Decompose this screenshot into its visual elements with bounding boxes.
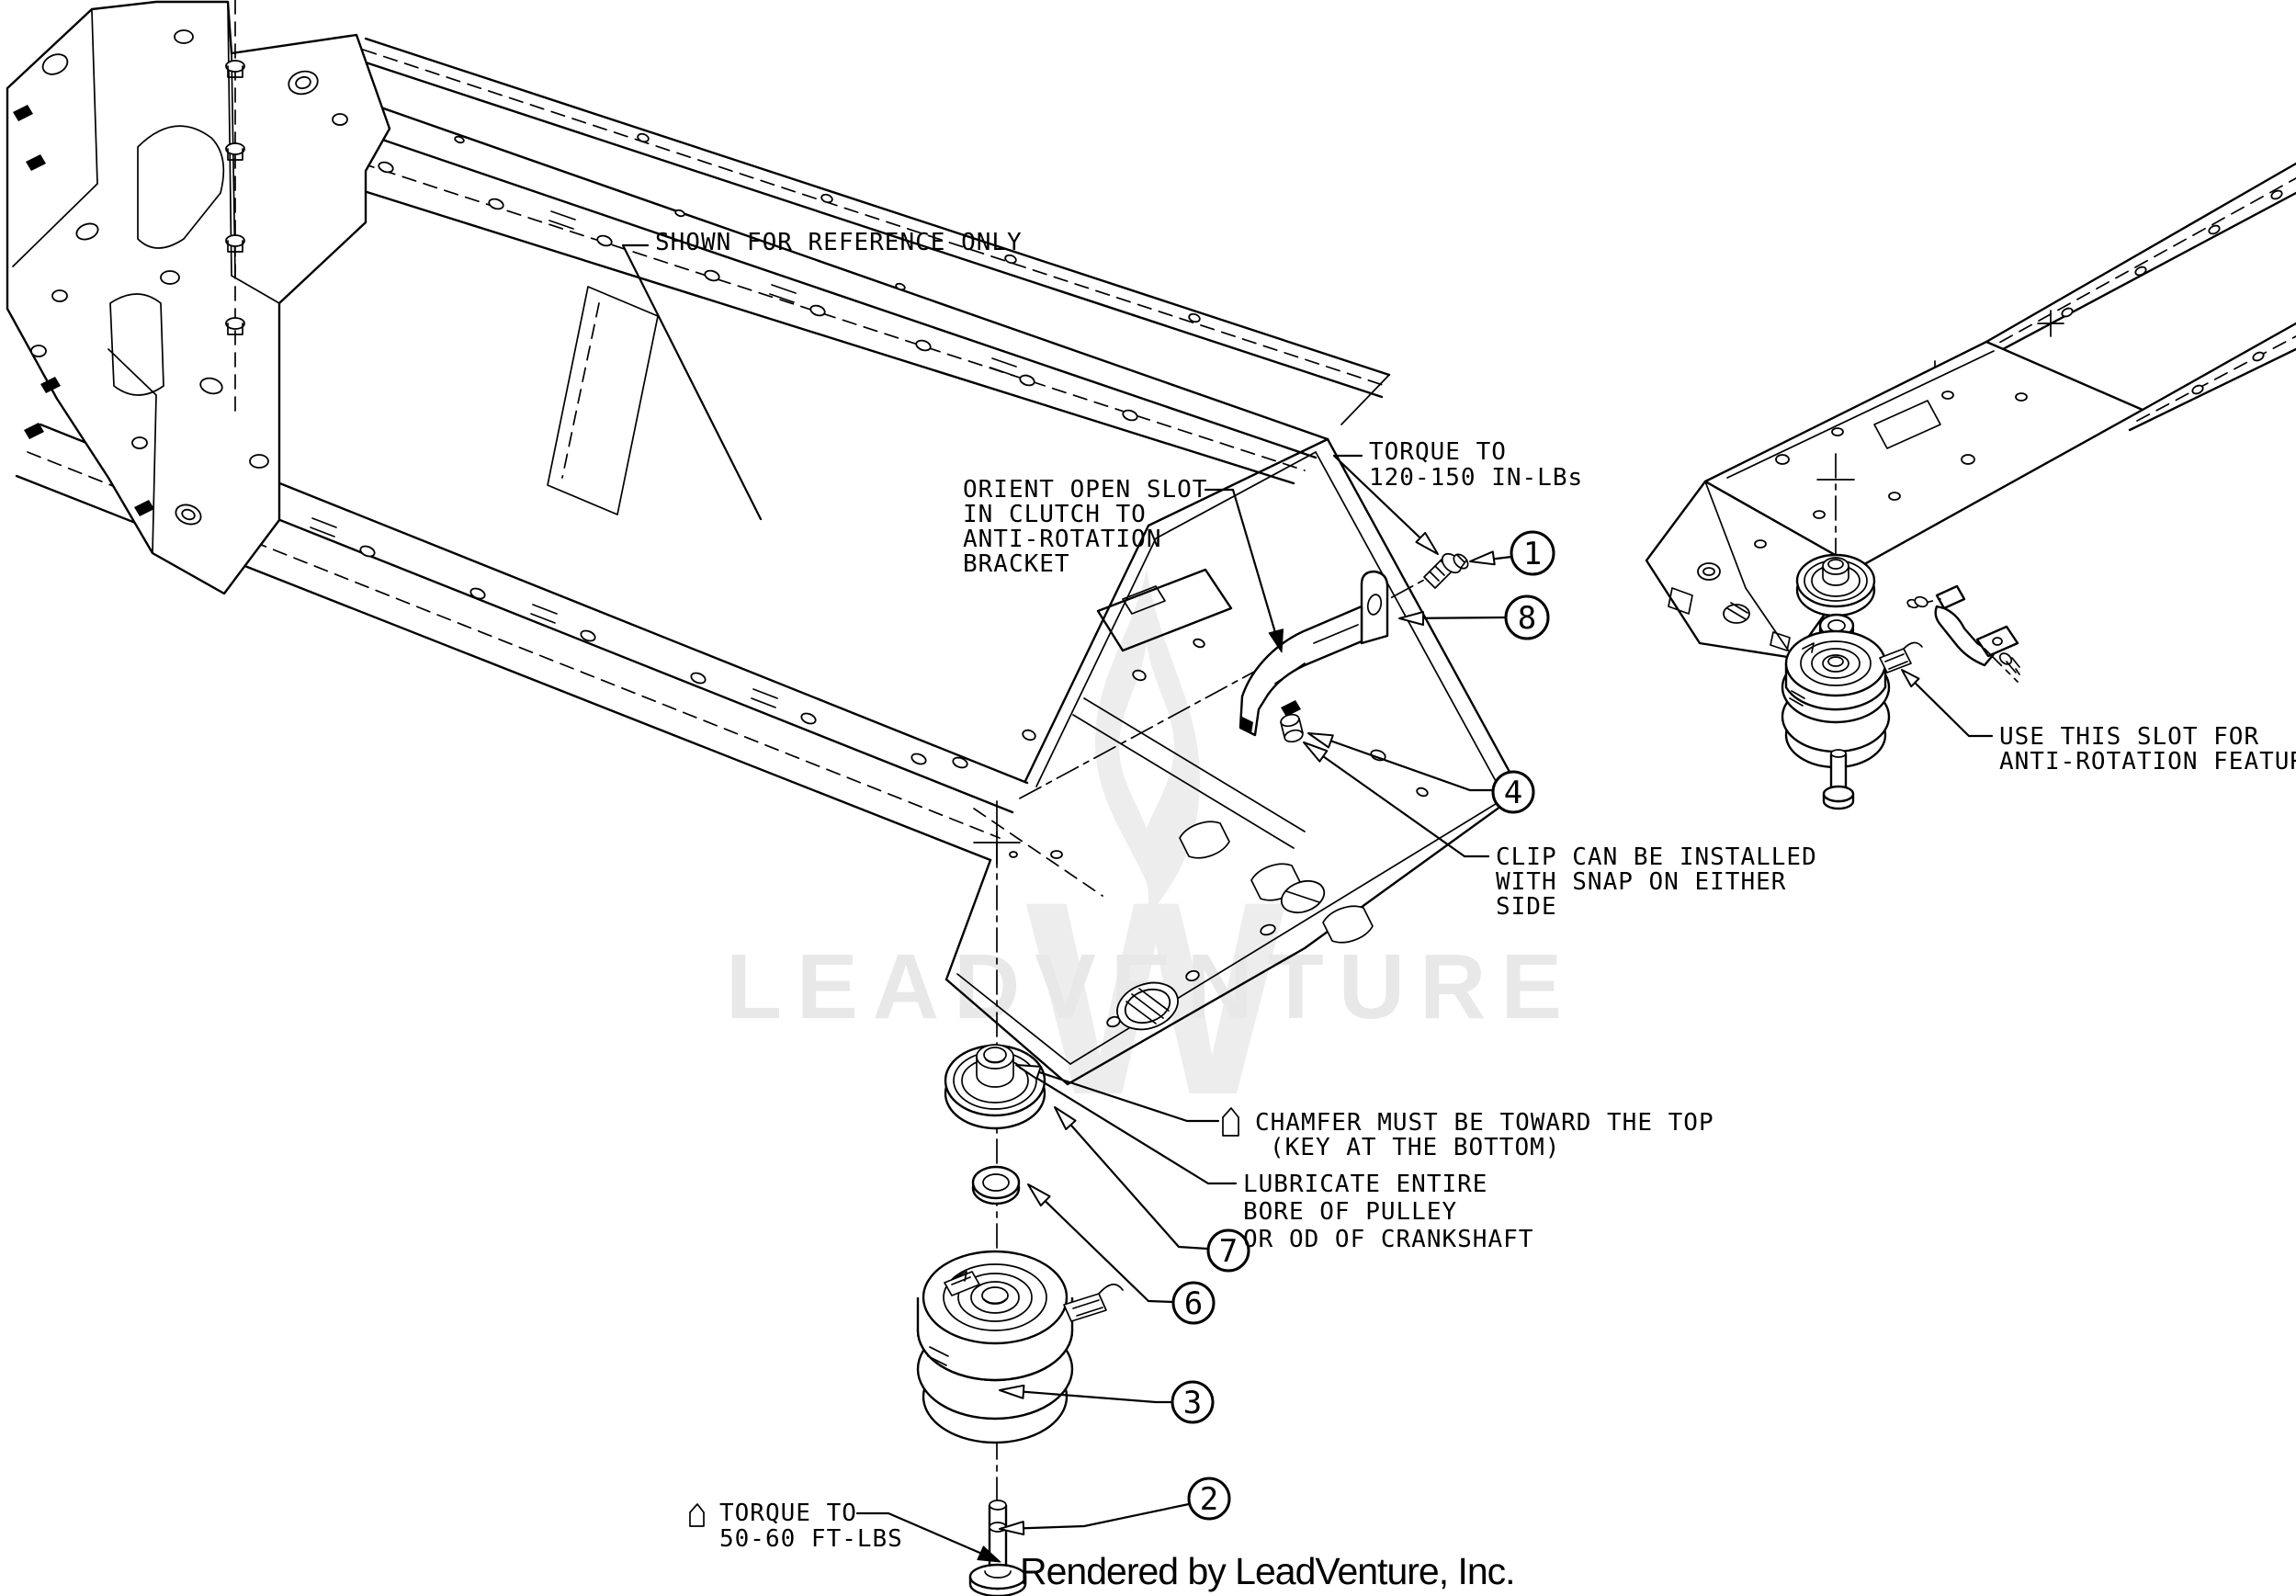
callout-2-number: 2 — [1200, 1481, 1218, 1518]
callout-6-number: 6 — [1184, 1285, 1203, 1322]
note-torque-upper-line2: 120-150 IN-LBs — [1369, 464, 1583, 492]
arrowhead — [1469, 551, 1495, 567]
flange-bolt-drawing — [1424, 550, 1471, 588]
parts-diagram-page: W LEADVENTURE — [0, 0, 2296, 1596]
arrowhead — [1024, 1180, 1049, 1205]
leader-callout-4 — [1312, 734, 1493, 790]
reference-pulley — [1797, 555, 1874, 616]
callout-2[interactable]: 2 — [1189, 1478, 1229, 1519]
reference-bracket — [1906, 586, 2019, 682]
callout-8-number: 8 — [1518, 600, 1536, 637]
callout-4[interactable]: 4 — [1493, 772, 1533, 812]
note-reference: SHOWN FOR REFERENCE ONLY — [655, 229, 1023, 256]
note-clip-line2: WITH SNAP ON EITHER — [1496, 868, 1786, 896]
callout-6[interactable]: 6 — [1173, 1283, 1214, 1323]
note-orient-line2: IN CLUTCH TO — [963, 501, 1147, 528]
note-orient-line4: BRACKET — [963, 550, 1070, 578]
washer-drawing — [973, 1167, 1019, 1204]
note-use-slot-line1: USE THIS SLOT FOR — [1999, 723, 2259, 751]
note-orient-line3: ANTI-ROTATION — [963, 526, 1162, 553]
callout-3[interactable]: 3 — [1172, 1382, 1213, 1422]
inspection-flag-icon — [690, 1504, 704, 1526]
anti-rotation-bracket-drawing — [1240, 572, 1387, 735]
callout-1[interactable]: 1 — [1511, 532, 1554, 574]
note-chamfer-line1: CHAMFER MUST BE TOWARD THE TOP — [1255, 1109, 1714, 1137]
note-clip-line3: SIDE — [1496, 893, 1557, 921]
crank-bolt-drawing — [970, 1500, 1025, 1596]
note-use-slot-line2: ANTI-ROTATION FEATURE — [1999, 748, 2296, 775]
pulley-drawing — [945, 1045, 1045, 1128]
note-chamfer-line2: (KEY AT THE BOTTOM) — [1270, 1134, 1560, 1161]
callout-3-number: 3 — [1183, 1385, 1202, 1421]
note-clip-line1: CLIP CAN BE INSTALLED — [1496, 843, 1817, 871]
note-torque-lower-line2: 50-60 FT-LBS — [719, 1525, 903, 1553]
note-torque-lower-line1: TORQUE TO — [719, 1500, 857, 1527]
arrowhead — [1416, 533, 1442, 559]
callout-7-number: 7 — [1219, 1233, 1238, 1270]
retaining-clip-drawing — [1280, 700, 1304, 743]
flame-logo-watermark: W — [1025, 568, 1288, 1152]
leader-use-slot — [1906, 673, 1992, 736]
leader-clip — [1307, 745, 1488, 856]
render-credit: Rendered by LeadVenture, Inc. — [1020, 1550, 1515, 1592]
callout-4-number: 4 — [1504, 775, 1522, 811]
note-lubricate-line2: BORE OF PULLEY — [1243, 1198, 1457, 1226]
callout-8[interactable]: 8 — [1506, 596, 1548, 639]
leader-orient — [1205, 490, 1279, 645]
note-orient-line1: ORIENT OPEN SLOT — [963, 476, 1207, 504]
note-lubricate-line1: LUBRICATE ENTIRE — [1243, 1171, 1487, 1198]
note-torque-upper-line1: TORQUE TO — [1369, 438, 1507, 466]
clutch-drawing — [918, 1251, 1123, 1443]
reference-clutch — [1782, 631, 1922, 767]
frame-cross-member — [548, 287, 658, 515]
note-lubricate-line3: OR OD OF CRANKSHAFT — [1243, 1226, 1533, 1253]
callout-1-number: 1 — [1523, 536, 1542, 572]
leader-callout-2 — [1003, 1504, 1189, 1529]
frame-reference-view — [1646, 164, 2296, 809]
arrowhead — [1399, 612, 1423, 625]
